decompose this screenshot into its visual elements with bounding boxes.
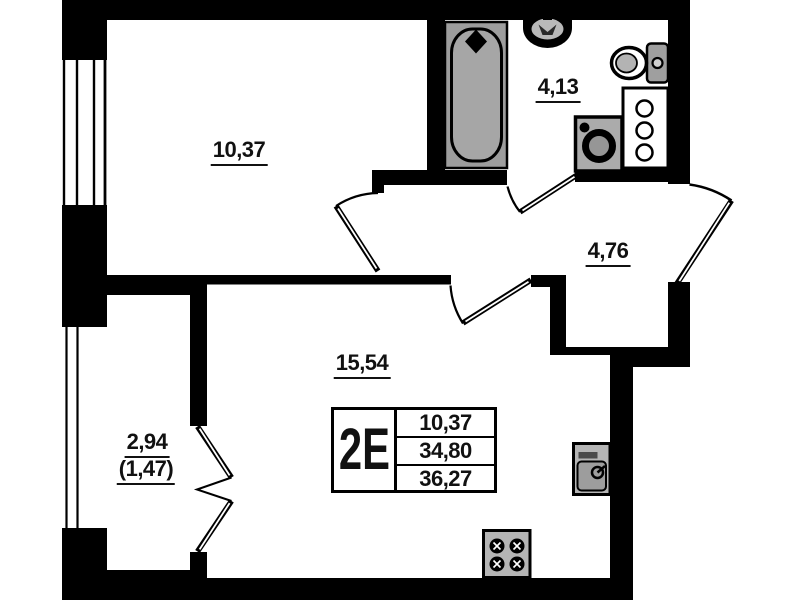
- unit-type-cell: 2E: [334, 410, 397, 490]
- door-living-room: [451, 280, 532, 324]
- door-bathroom: [508, 175, 578, 212]
- unit-area-values: 10,37 34,80 36,27: [397, 410, 494, 490]
- room-label-hallway: 4,76: [586, 238, 631, 267]
- room-area-value: (1,47): [117, 456, 175, 485]
- window-bedroom: [64, 58, 105, 207]
- unit-info-table: 2E 10,37 34,80 36,27: [331, 407, 497, 493]
- unit-area-total: 34,80: [397, 438, 494, 466]
- room-area-value: 15,54: [334, 350, 391, 379]
- room-area-value: 2,94: [125, 429, 170, 458]
- balcony-door: [197, 427, 232, 552]
- room-label-balcony-coefficient: (1,47): [117, 456, 175, 485]
- toilet: [612, 44, 669, 83]
- shelf-unit: [623, 88, 668, 168]
- room-label-living-kitchen: 15,54: [334, 350, 391, 379]
- unit-area-overall: 36,27: [397, 466, 494, 492]
- room-area-value: 4,76: [586, 238, 631, 267]
- walls: [62, 0, 690, 600]
- washing-machine: [576, 117, 623, 171]
- floor-plan: 10,37 4,13 4,76 15,54 2,94 (1,47) 2E 10,…: [0, 0, 799, 600]
- door-bedroom: [336, 193, 378, 271]
- room-label-bedroom: 10,37: [211, 137, 268, 166]
- room-area-value: 10,37: [211, 137, 268, 166]
- room-label-balcony: 2,94: [125, 429, 170, 458]
- room-label-bathroom: 4,13: [536, 74, 581, 103]
- unit-area-living: 10,37: [397, 410, 494, 438]
- wash-basin: [523, 14, 572, 48]
- stove: [484, 531, 531, 578]
- room-area-value: 4,13: [536, 74, 581, 103]
- unit-type-label: 2E: [338, 421, 389, 479]
- kitchen-sink: [574, 444, 611, 495]
- balcony-glazing: [67, 325, 78, 530]
- bathtub: [445, 22, 507, 168]
- entrance-door: [677, 185, 732, 284]
- floor-plan-drawing: [0, 0, 799, 600]
